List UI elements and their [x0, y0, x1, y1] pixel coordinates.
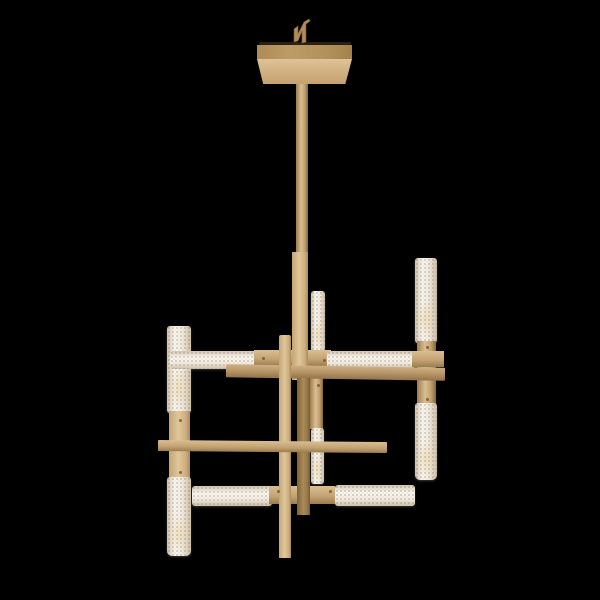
canopy-front-face — [257, 59, 352, 84]
canopy-top-band — [257, 45, 352, 59]
screw-icon — [262, 357, 265, 360]
right-light-lower-tube — [415, 403, 437, 480]
left-light-lower-tube — [167, 477, 191, 556]
downrod-coupler — [292, 252, 308, 380]
screw-icon — [317, 384, 320, 387]
screw-icon — [179, 471, 182, 474]
screw-icon — [323, 359, 326, 362]
lower-arm-left-tube — [192, 486, 272, 506]
left-light-upper-tube — [167, 326, 191, 413]
cross-rod — [158, 440, 387, 453]
screw-icon — [179, 419, 182, 422]
downrod-upper — [296, 83, 308, 255]
lower-arm-right-tube — [335, 485, 415, 506]
upper-arm-end-block — [412, 351, 444, 367]
center-light-upper-tube — [311, 291, 325, 352]
main-arm — [226, 364, 445, 380]
screw-icon — [329, 490, 332, 493]
screw-icon — [426, 346, 429, 349]
screw-icon — [277, 490, 280, 493]
screw-icon — [426, 398, 429, 401]
center-light-lower-tube — [311, 428, 324, 484]
chandelier-product-photo — [0, 0, 600, 600]
right-light-upper-tube — [415, 258, 437, 343]
hanger-hook-icon — [288, 16, 316, 46]
